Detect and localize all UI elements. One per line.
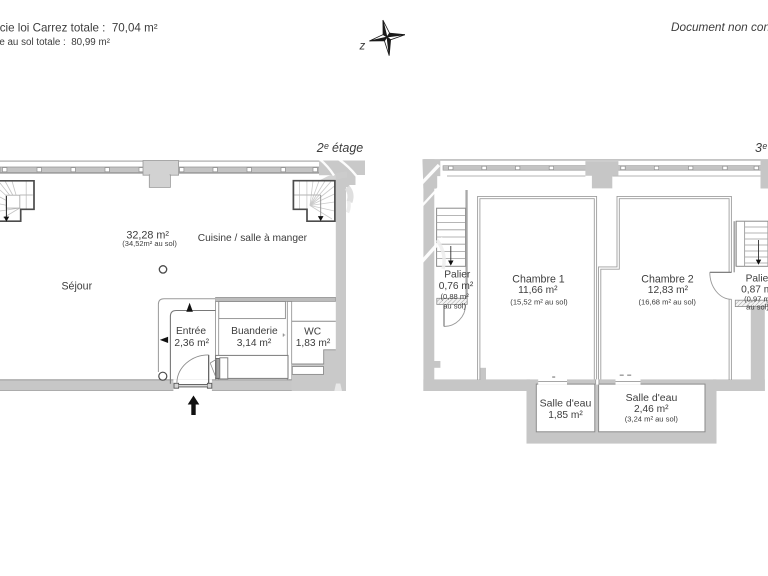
svg-text:3,14 m²: 3,14 m² bbox=[237, 338, 272, 349]
svg-text:11,66 m²: 11,66 m² bbox=[518, 285, 558, 296]
svg-text:2,36 m²: 2,36 m² bbox=[174, 338, 209, 349]
svg-text:WC: WC bbox=[304, 327, 321, 338]
svg-text:Buanderie: Buanderie bbox=[231, 326, 278, 337]
svg-text:Superficie loi Carrez totale :: Superficie loi Carrez totale : 70,04 m² bbox=[0, 22, 158, 35]
svg-text:3ᵉ étage: 3ᵉ étage bbox=[755, 141, 768, 155]
svg-text:au sol): au sol) bbox=[746, 303, 768, 312]
svg-text:z: z bbox=[359, 41, 366, 53]
svg-text:Séjour: Séjour bbox=[61, 280, 92, 292]
svg-text:1,83 m²: 1,83 m² bbox=[296, 338, 331, 349]
svg-text:12,83 m²: 12,83 m² bbox=[648, 285, 689, 296]
svg-text:(16,68 m² au sol): (16,68 m² au sol) bbox=[638, 297, 696, 306]
svg-text:Entrée: Entrée bbox=[176, 326, 206, 337]
svg-text:Palier: Palier bbox=[746, 273, 768, 284]
svg-text:0,76 m²: 0,76 m² bbox=[439, 281, 474, 292]
svg-text:(34,52m² au sol): (34,52m² au sol) bbox=[122, 239, 177, 248]
svg-text:(3,24 m² au sol): (3,24 m² au sol) bbox=[625, 415, 679, 424]
svg-text:Palier: Palier bbox=[444, 270, 471, 281]
svg-text:(0,88 m²: (0,88 m² bbox=[440, 292, 469, 301]
svg-text:2,46 m²: 2,46 m² bbox=[634, 404, 669, 415]
svg-text:Surface au sol totale : 80,99: Surface au sol totale : 80,99 m² bbox=[0, 37, 111, 48]
svg-text:Document non contractuel: Document non contractuel bbox=[671, 20, 768, 34]
svg-text:Chambre 2: Chambre 2 bbox=[641, 274, 694, 286]
svg-text:(15,52 m² au sol): (15,52 m² au sol) bbox=[510, 297, 568, 306]
svg-text:Chambre 1: Chambre 1 bbox=[512, 274, 565, 286]
svg-text:Salle d'eau: Salle d'eau bbox=[540, 398, 592, 410]
svg-text:au sol): au sol) bbox=[443, 302, 466, 311]
svg-text:Salle d'eau: Salle d'eau bbox=[626, 392, 678, 404]
svg-text:Cuisine / salle à manger: Cuisine / salle à manger bbox=[198, 233, 308, 244]
svg-text:1,85 m²: 1,85 m² bbox=[548, 410, 583, 421]
svg-text:2ᵉ étage: 2ᵉ étage bbox=[316, 141, 364, 155]
